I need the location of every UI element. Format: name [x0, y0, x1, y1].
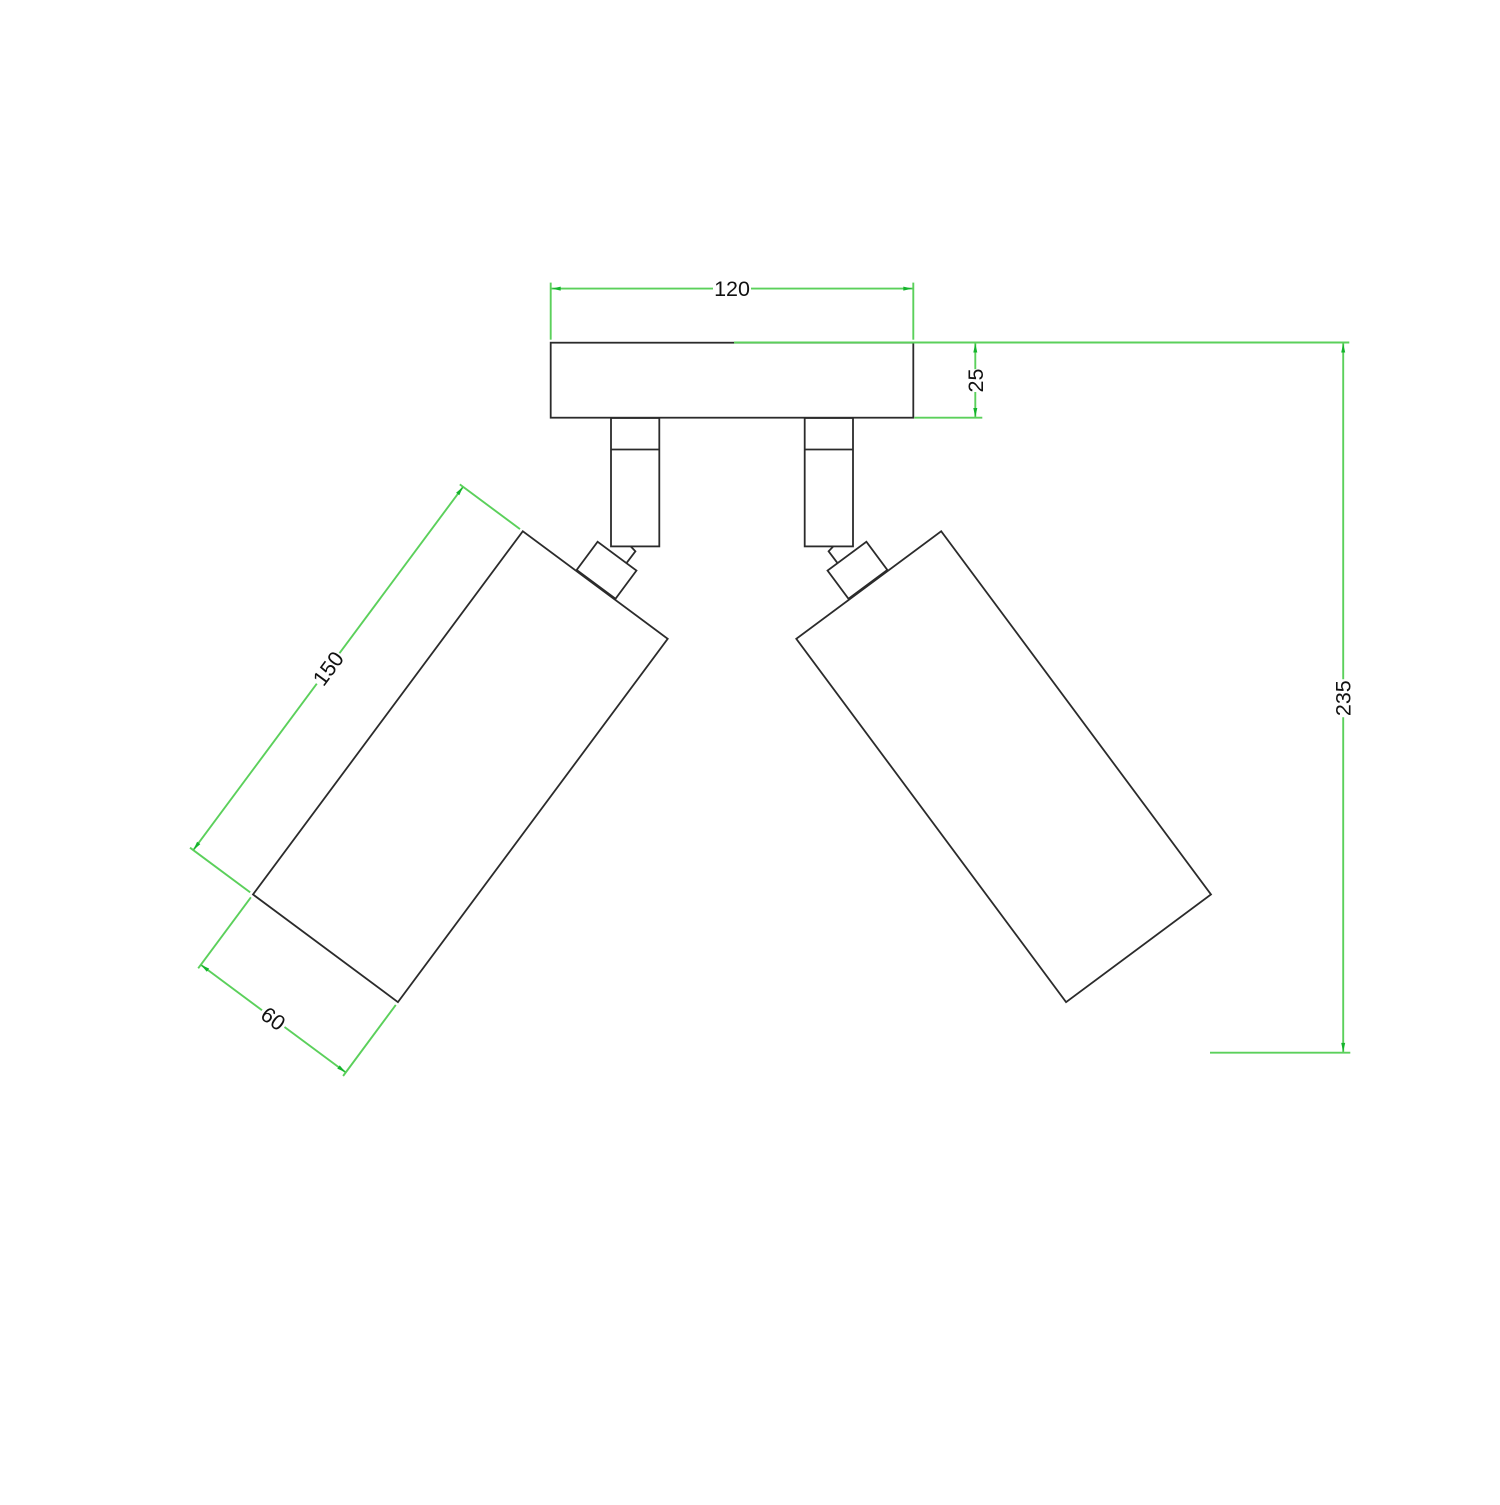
svg-text:25: 25	[964, 369, 988, 393]
svg-text:120: 120	[714, 277, 750, 301]
svg-text:235: 235	[1332, 680, 1356, 716]
